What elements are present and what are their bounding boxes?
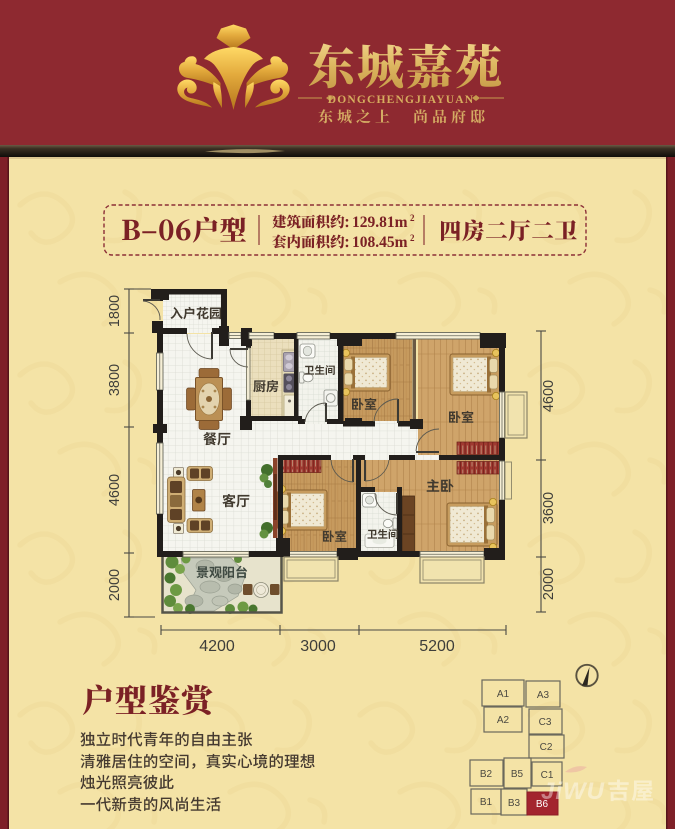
svg-text:B3: B3	[508, 798, 521, 809]
svg-text:C3: C3	[539, 717, 552, 728]
svg-text:A1: A1	[497, 689, 510, 700]
svg-text:3600: 3600	[541, 492, 557, 524]
svg-text:B1: B1	[480, 797, 493, 808]
svg-text:C2: C2	[540, 742, 553, 753]
svg-text:A3: A3	[537, 690, 550, 701]
svg-text:4600: 4600	[107, 474, 123, 506]
svg-text:129.81m: 129.81m	[352, 214, 408, 231]
svg-text:4200: 4200	[199, 638, 235, 655]
svg-text:2000: 2000	[541, 568, 557, 600]
svg-text:JiWU: JiWU	[541, 778, 605, 805]
svg-text:B2: B2	[480, 769, 493, 780]
svg-text:2: 2	[410, 213, 415, 223]
svg-text:4600: 4600	[541, 380, 557, 412]
svg-text:B5: B5	[511, 769, 524, 780]
svg-text:5200: 5200	[419, 638, 455, 655]
svg-text:DONGCHENGJIAYUAN: DONGCHENGJIAYUAN	[328, 94, 475, 106]
svg-text:2000: 2000	[107, 569, 123, 601]
svg-text:108.45m: 108.45m	[352, 234, 408, 251]
svg-text:2: 2	[410, 233, 415, 243]
svg-text:1800: 1800	[107, 295, 123, 327]
svg-text:A2: A2	[497, 715, 510, 726]
svg-text:3800: 3800	[107, 364, 123, 396]
svg-text:3000: 3000	[300, 638, 336, 655]
